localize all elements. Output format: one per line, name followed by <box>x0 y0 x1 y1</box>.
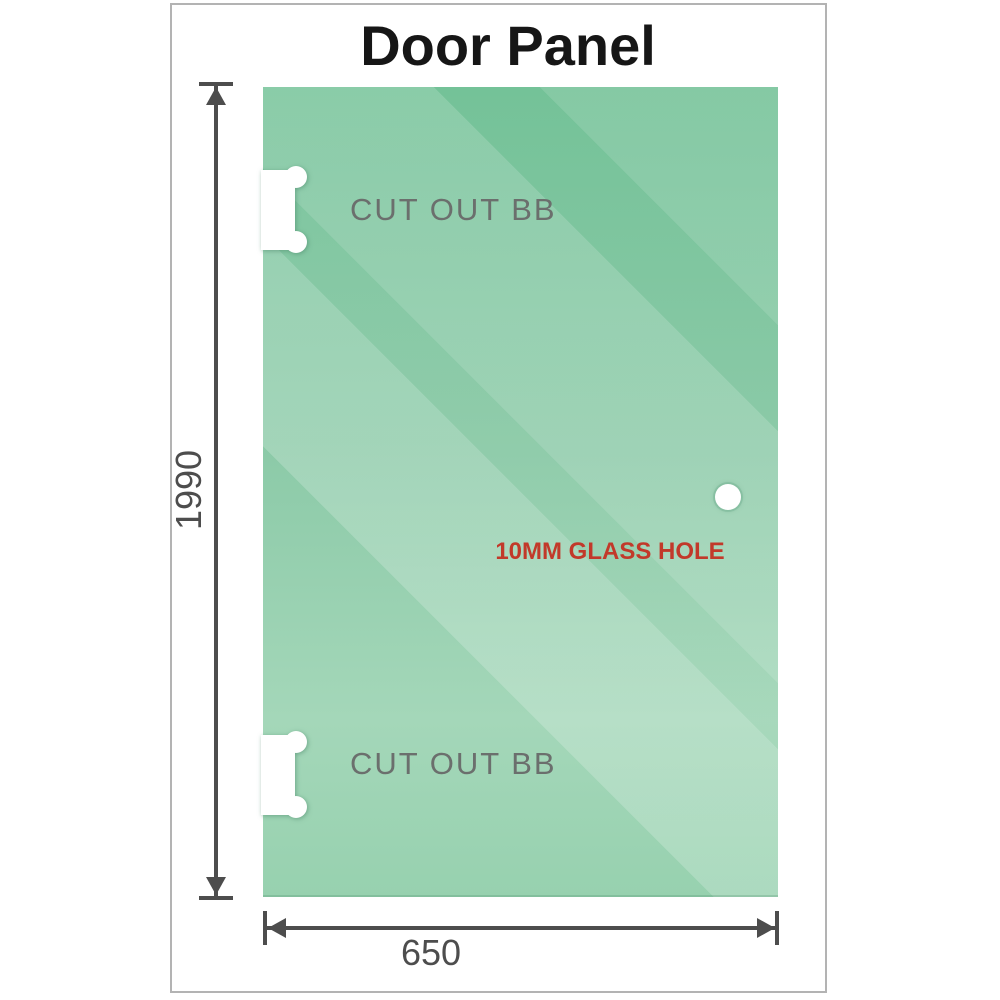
cutout-label-bottom: CUT OUT BB <box>350 746 557 782</box>
left-arrow-icon <box>268 918 286 938</box>
down-arrow-icon <box>206 877 226 895</box>
width-dim-label: 650 <box>401 932 461 974</box>
hinge-cutout-bottom-bump-lower <box>285 796 307 818</box>
glass-hole-label: 10MM GLASS HOLE <box>495 538 724 566</box>
glass-hole-icon <box>715 484 741 510</box>
height-dim-label: 1990 <box>168 450 210 530</box>
hinge-cutout-top-bump-upper <box>285 166 307 188</box>
hinge-cutout-bottom-bump-upper <box>285 731 307 753</box>
hinge-cutout-top-bump-lower <box>285 231 307 253</box>
width-dim-right-tick <box>775 911 779 945</box>
page-title: Door Panel <box>360 13 656 78</box>
cutout-label-top: CUT OUT BB <box>350 192 557 228</box>
width-dim-line <box>266 926 776 930</box>
right-arrow-icon <box>757 918 775 938</box>
diagram-canvas: Door Panel CUT OUT BB CUT OUT BB 10MM GL… <box>0 0 1000 1000</box>
height-dim-bottom-tick <box>199 896 233 900</box>
height-dim-line <box>214 84 218 896</box>
up-arrow-icon <box>206 87 226 105</box>
